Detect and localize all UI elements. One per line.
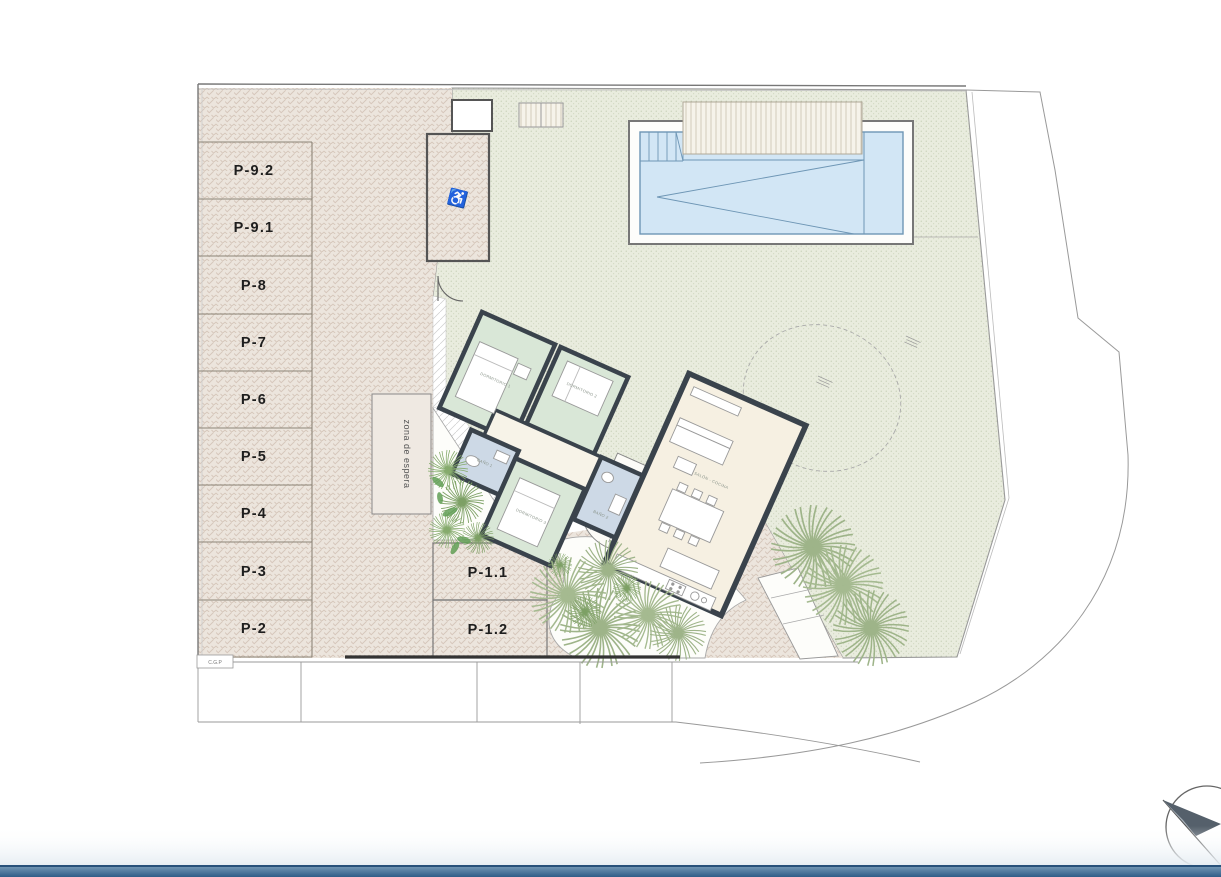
site-plan-page: P-9.2 P-9.1 P-8 P-7 P-6 P-5 P-4 P-3 P-2 … xyxy=(0,0,1221,877)
stall-label: P-8 xyxy=(241,278,267,294)
stall-label: P-6 xyxy=(241,392,267,408)
stall-label: P-1.1 xyxy=(468,565,509,581)
pergola xyxy=(683,102,862,154)
waiting-zone-label: zona de espera xyxy=(402,419,412,488)
slope-hatch-band-2 xyxy=(433,296,446,408)
stall-label: P-4 xyxy=(241,506,267,522)
footer-bar xyxy=(0,867,1221,877)
site-plan-drawing: P-9.2 P-9.1 P-8 P-7 P-6 P-5 P-4 P-3 P-2 … xyxy=(0,0,1221,877)
stall-label: P-1.2 xyxy=(468,622,509,638)
cgp-label: C.G.P xyxy=(208,660,222,666)
utility-box xyxy=(452,100,492,131)
stall-label: P-9.2 xyxy=(234,163,275,179)
stall-label: P-9.1 xyxy=(234,220,275,236)
stall-label: P-3 xyxy=(241,564,267,580)
stall-label: P-5 xyxy=(241,449,267,465)
stall-label: P-7 xyxy=(241,335,267,351)
grate-box xyxy=(519,103,563,127)
stall-label: P-2 xyxy=(241,621,267,637)
footer-bar-edge xyxy=(0,865,1221,867)
waiting-zone: zona de espera xyxy=(372,394,431,514)
cgp-box: C.G.P xyxy=(197,655,233,668)
footer-fade xyxy=(0,826,1221,867)
